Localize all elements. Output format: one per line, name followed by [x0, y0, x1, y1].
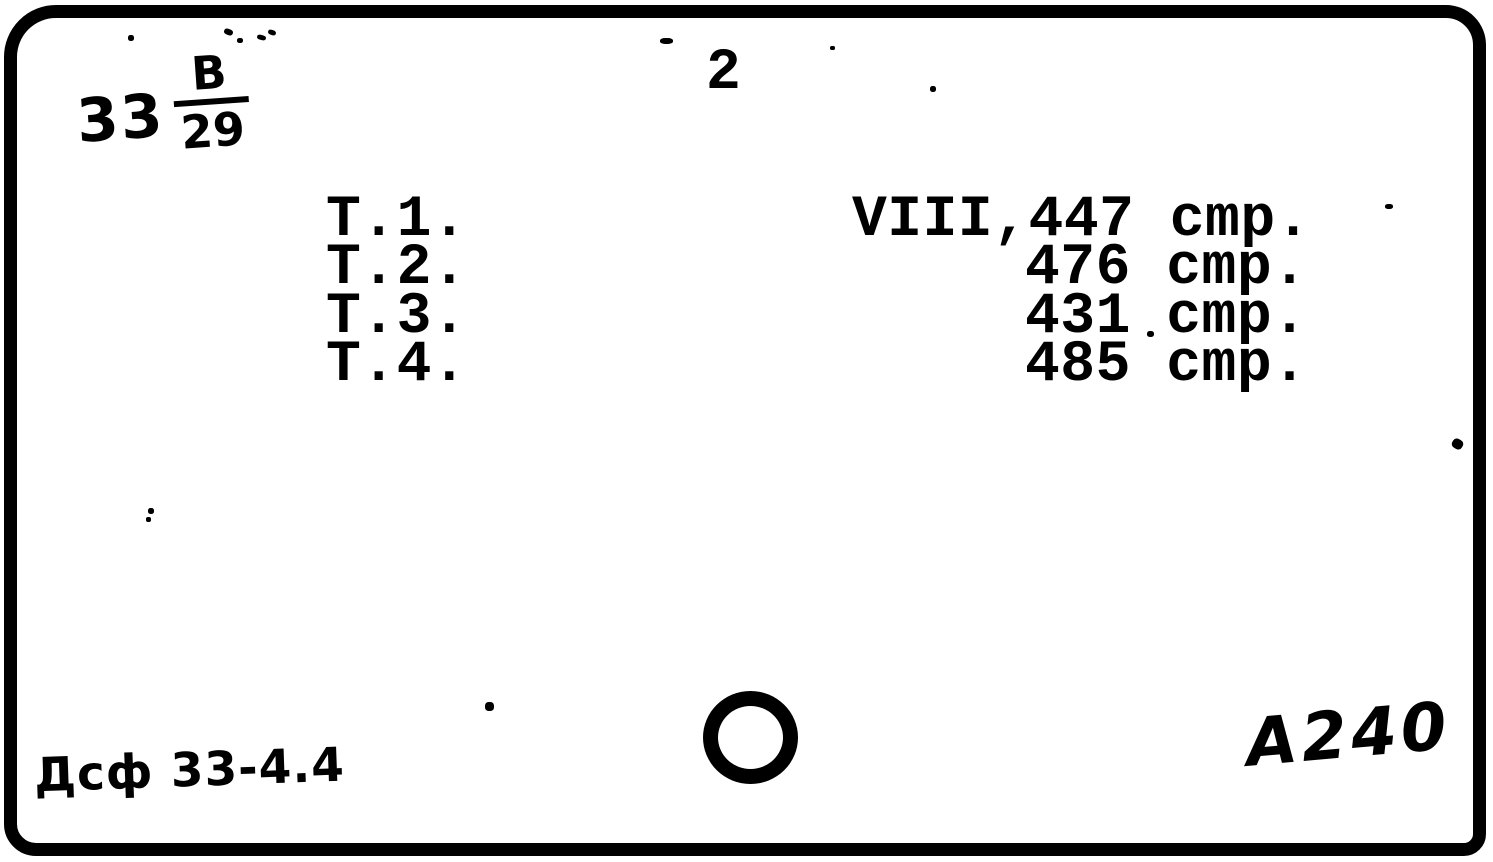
scan-speckle [660, 38, 673, 44]
call-number-class: 33 [75, 86, 166, 152]
page-number: 2 [706, 45, 741, 103]
volume-label-4: Т.4. [326, 337, 467, 395]
volume-pages-4: 485 cmp. [1025, 337, 1307, 395]
call-number-author-number: 29 [179, 103, 246, 159]
scan-speckle [1147, 331, 1154, 337]
scan-speckle [128, 35, 134, 41]
scan-speckle [485, 702, 494, 711]
scan-speckle [1385, 204, 1393, 209]
bottom-left-note: Дсф 33-4.4 [33, 742, 345, 800]
call-number-fraction: В 29 [170, 46, 252, 159]
scan-speckle [237, 38, 243, 43]
bottom-right-note: А240 [1244, 693, 1454, 777]
catalog-card-scan: 33 В 29 2 Т.1. Т.2. Т.3. Т.4. VIII,447 c… [0, 0, 1493, 862]
scan-speckle [930, 86, 936, 92]
scan-speckle [146, 517, 151, 522]
call-number-author-letter: В [170, 46, 249, 107]
scan-speckle [148, 508, 154, 514]
punch-hole [703, 691, 798, 784]
scan-speckle [830, 46, 835, 50]
call-number: 33 В 29 [72, 46, 252, 166]
